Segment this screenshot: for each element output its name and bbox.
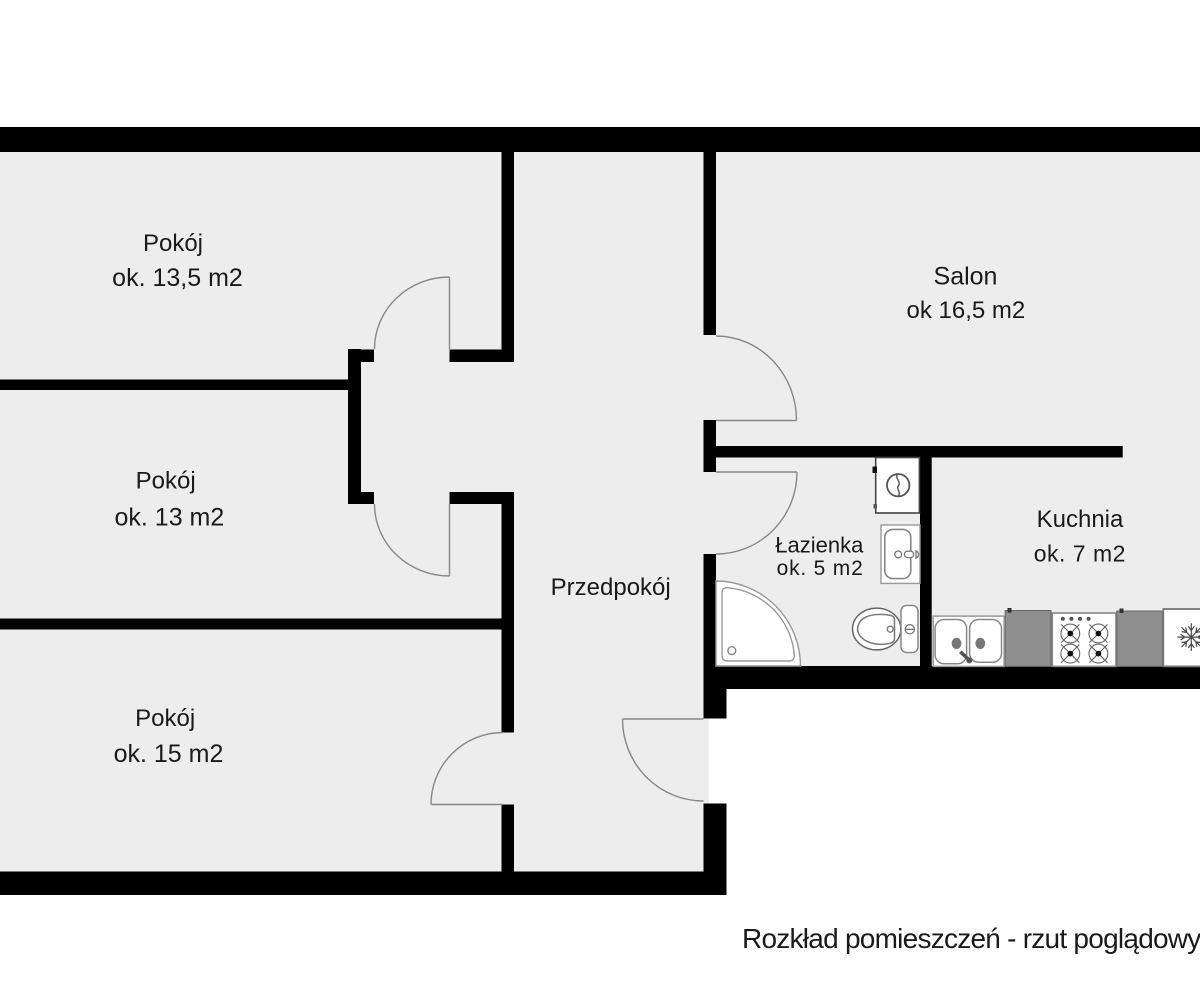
svg-text:Łazienka: Łazienka [775, 533, 864, 558]
svg-text:Salon: Salon [934, 263, 998, 291]
svg-text:ok. 15 m2: ok. 15 m2 [114, 740, 224, 768]
svg-text:Przedpokój: Przedpokój [551, 574, 671, 601]
svg-text:ok. 13,5 m2: ok. 13,5 m2 [112, 264, 243, 292]
svg-text:Pokój: Pokój [136, 468, 196, 495]
svg-text:Pokój: Pokój [135, 705, 195, 732]
svg-text:Kuchnia: Kuchnia [1037, 506, 1124, 533]
svg-text:Rozkład pomieszczeń - rzut pog: Rozkład pomieszczeń - rzut poglądowy [742, 923, 1200, 954]
svg-text:ok. 5 m2: ok. 5 m2 [777, 557, 864, 580]
svg-text:ok. 7 m2: ok. 7 m2 [1034, 541, 1126, 567]
svg-text:ok. 13 m2: ok. 13 m2 [115, 504, 225, 532]
svg-text:ok 16,5 m2: ok 16,5 m2 [907, 297, 1026, 324]
svg-text:Pokój: Pokój [143, 230, 203, 257]
